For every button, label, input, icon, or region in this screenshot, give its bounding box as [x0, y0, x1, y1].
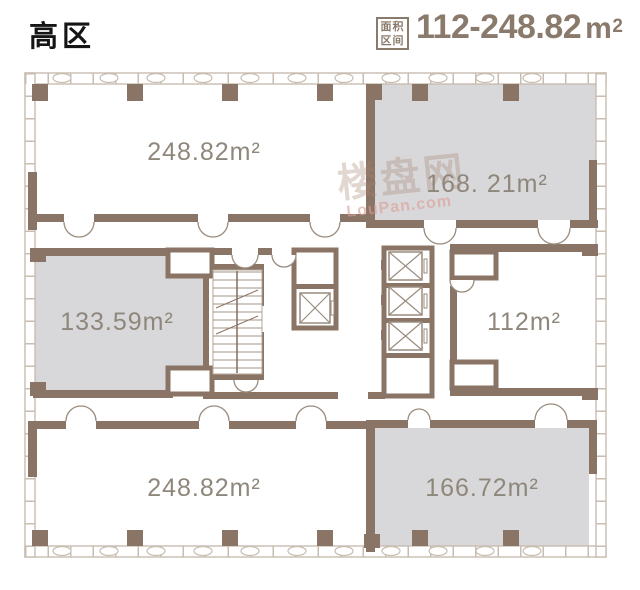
room-label-top-right: 168. 21m² [426, 170, 548, 198]
room-label-bottom-right: 166.72m² [425, 474, 539, 502]
room-label-top-left: 248.82m² [147, 138, 261, 166]
room-label-middle-left: 133.59m² [60, 308, 174, 336]
staircase [213, 270, 262, 374]
elevator-bank [381, 248, 432, 396]
floor-plan: 楼盘网 LouPan.com 248.82m² 168. 21m² 133.59… [0, 0, 640, 590]
center-elevator [294, 250, 336, 328]
room-label-middle-right: 112m² [487, 308, 561, 336]
room-label-bottom-left: 248.82m² [147, 474, 261, 502]
